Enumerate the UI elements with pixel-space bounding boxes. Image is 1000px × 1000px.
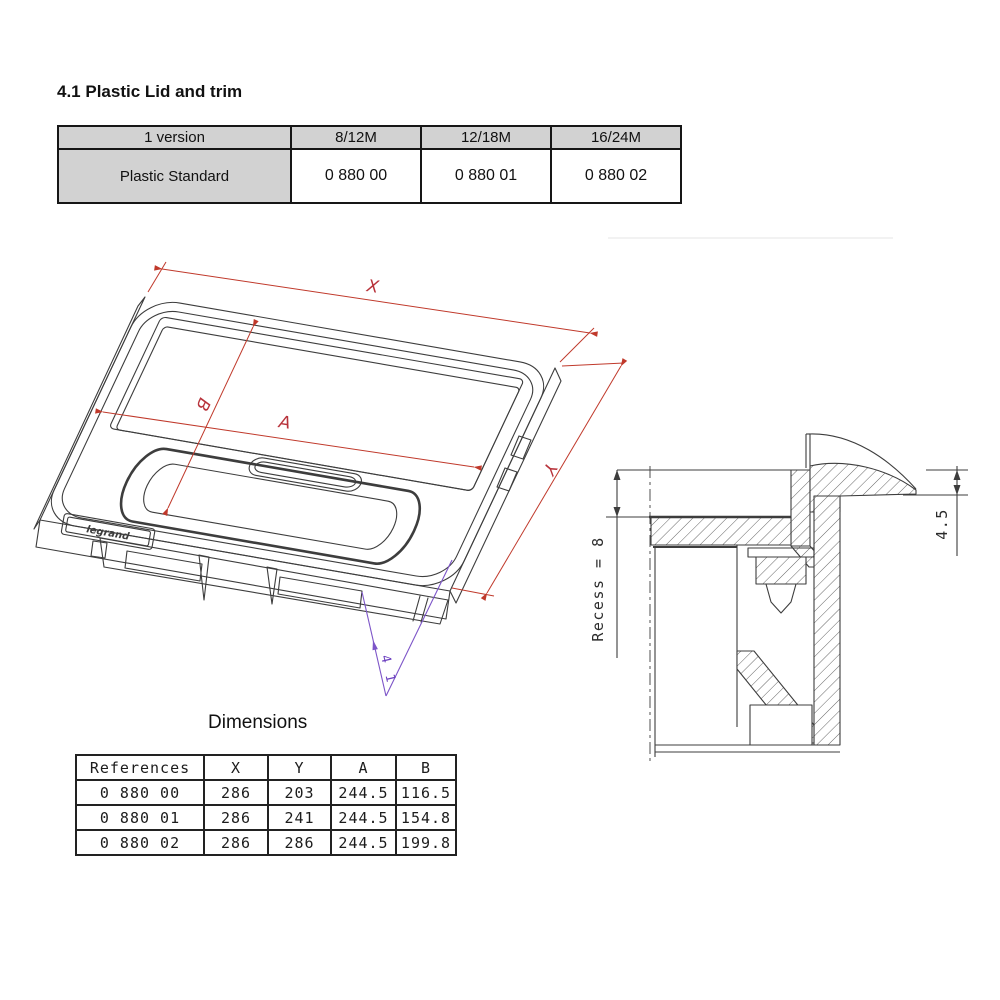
lip-dim-arrow <box>954 485 961 495</box>
dimensions-table-header: References <box>76 755 204 780</box>
dim-cell: 203 <box>268 780 331 805</box>
dim-cell: 244.5 <box>331 830 396 855</box>
dim-cell: 199.8 <box>396 830 456 855</box>
dimensions-table-header: A <box>331 755 396 780</box>
section-drawing <box>606 434 968 764</box>
dim-ext-line <box>148 262 166 292</box>
dim-cell: 286 <box>204 805 268 830</box>
dim-cell: 154.8 <box>396 805 456 830</box>
iso-dimension-purple <box>362 560 452 696</box>
recess-dim-arrow <box>614 470 621 480</box>
dim-ext-line <box>562 363 624 366</box>
clamp-block <box>756 557 806 584</box>
under-tray-recess <box>125 551 202 581</box>
dim-cell: 244.5 <box>331 780 396 805</box>
tray-end-line <box>421 598 428 622</box>
dimensions-table-header: B <box>396 755 456 780</box>
iso-lid-drawing: legrand <box>34 297 561 624</box>
catalog-page: 4.1 Plastic Lid and trim 1 version 8/12M… <box>0 0 1000 1000</box>
dimensions-table: References X Y A B 0 880 00 286 203 244.… <box>75 754 457 856</box>
dim-cell: 286 <box>204 780 268 805</box>
bottom-block <box>750 705 812 745</box>
fixing-claw <box>267 567 277 604</box>
dim-label-41: 4 1 <box>377 654 398 686</box>
dim-cell: 286 <box>268 830 331 855</box>
dim-cell: 116.5 <box>396 780 456 805</box>
dim-cell: 241 <box>268 805 331 830</box>
tray-end-line <box>413 596 420 621</box>
lid-right-face <box>450 368 561 603</box>
dim-label-a: A <box>277 412 292 434</box>
dimensions-table-header: X <box>204 755 268 780</box>
lid-skirt-section <box>791 470 810 546</box>
lid-outer-outline <box>40 297 555 591</box>
lid-left-face <box>34 297 145 529</box>
dim-ext-line <box>560 328 594 362</box>
dim-cell: 0 880 02 <box>76 830 204 855</box>
dim-label-x: X <box>365 276 381 298</box>
dimensions-table-header: Y <box>268 755 331 780</box>
dimensions-table-header-row: References X Y A B <box>76 755 456 780</box>
floor-covering-section <box>651 517 791 545</box>
left-clip <box>91 541 107 558</box>
dimensions-title: Dimensions <box>208 712 307 734</box>
clamp-screw <box>766 584 796 613</box>
dim-label-b: B <box>191 395 214 414</box>
dim-cell: 0 880 01 <box>76 805 204 830</box>
lid-handle-inner <box>136 461 405 552</box>
side-latch-tab <box>497 468 517 491</box>
lip-dim-arrow <box>954 470 961 480</box>
brand-plate: legrand <box>61 513 155 550</box>
dim-label-y: Y <box>537 459 560 479</box>
box-wall-section <box>814 496 840 745</box>
iso-lid-top-face <box>40 297 555 591</box>
lip-label: 4.5 <box>933 508 951 540</box>
recess-label: Recess = 8 <box>589 536 607 641</box>
dimensions-table-row: 0 880 01 286 241 244.5 154.8 <box>76 805 456 830</box>
dimensions-table-row: 0 880 00 286 203 244.5 116.5 <box>76 780 456 805</box>
depth-arrowhead <box>373 640 378 650</box>
dim-cell: 0 880 00 <box>76 780 204 805</box>
dim-line-b <box>168 327 253 508</box>
dim-cell: 286 <box>204 830 268 855</box>
dimensions-table-row: 0 880 02 286 286 244.5 199.8 <box>76 830 456 855</box>
dim-cell: 244.5 <box>331 805 396 830</box>
recess-dim-arrow <box>614 507 621 517</box>
